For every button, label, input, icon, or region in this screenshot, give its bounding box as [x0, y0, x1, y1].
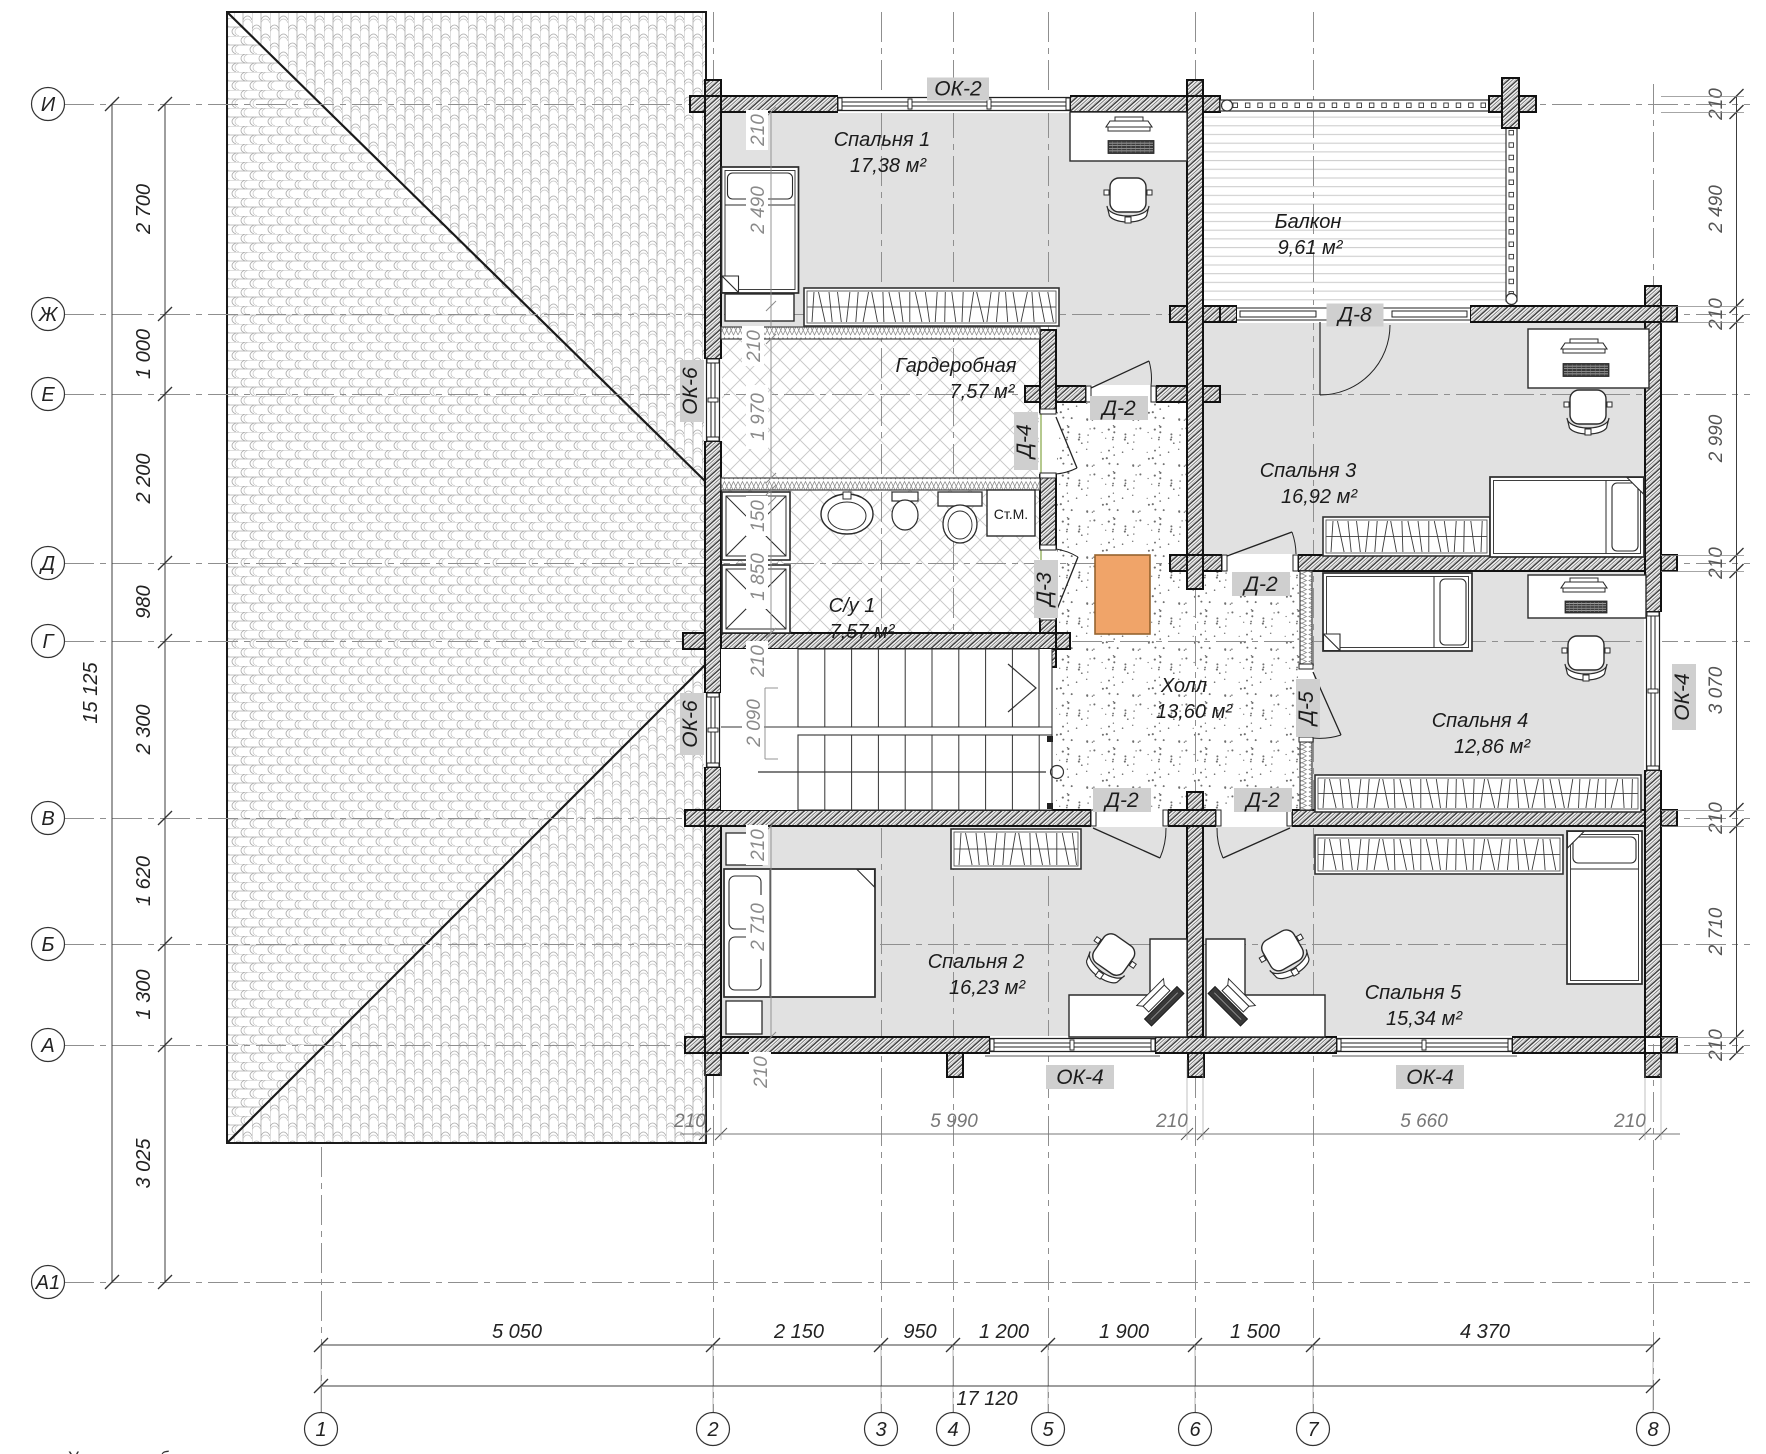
svg-text:1 200: 1 200	[979, 1321, 1029, 1343]
svg-text:ОК-2: ОК-2	[934, 78, 982, 101]
svg-text:3: 3	[875, 1419, 886, 1441]
svg-text:А1: А1	[35, 1272, 60, 1294]
svg-text:210: 210	[673, 1111, 706, 1132]
svg-text:5 990: 5 990	[930, 1111, 978, 1132]
svg-text:ОК-4: ОК-4	[1406, 1066, 1453, 1089]
svg-text:980: 980	[133, 585, 155, 618]
svg-text:Д: Д	[39, 553, 55, 575]
svg-text:2 490: 2 490	[1706, 185, 1727, 234]
svg-text:17 120: 17 120	[956, 1388, 1017, 1410]
svg-text:Д-2: Д-2	[1100, 397, 1136, 420]
svg-text:8: 8	[1647, 1419, 1658, 1441]
svg-text:17,38 м²: 17,38 м²	[850, 155, 927, 177]
svg-text:210: 210	[748, 645, 769, 678]
svg-text:ОК-4: ОК-4	[1671, 673, 1694, 720]
svg-text:Балкон: Балкон	[1275, 211, 1342, 233]
svg-text:150: 150	[748, 500, 769, 532]
svg-text:210: 210	[1706, 88, 1727, 121]
svg-text:2 490: 2 490	[748, 186, 769, 235]
svg-text:Ж: Ж	[38, 304, 59, 326]
svg-text:210: 210	[748, 114, 769, 147]
svg-text:Спальня 5: Спальня 5	[1365, 982, 1462, 1004]
svg-text:Условные обозначения: Условные обозначения	[68, 1448, 252, 1454]
svg-text:2 710: 2 710	[1706, 907, 1727, 956]
svg-text:ОК-6: ОК-6	[679, 367, 702, 415]
svg-text:13,60 м²: 13,60 м²	[1156, 701, 1233, 723]
svg-text:Д-2: Д-2	[1103, 789, 1139, 812]
svg-text:1 000: 1 000	[133, 329, 155, 379]
svg-text:1 500: 1 500	[1230, 1321, 1280, 1343]
svg-text:Д-3: Д-3	[1033, 572, 1056, 608]
svg-text:3 070: 3 070	[1706, 666, 1727, 714]
svg-text:2: 2	[706, 1419, 718, 1441]
svg-text:210: 210	[751, 1056, 772, 1089]
svg-text:9,61 м²: 9,61 м²	[1278, 237, 1344, 259]
svg-text:ОК-4: ОК-4	[1056, 1066, 1103, 1089]
svg-text:1 900: 1 900	[1099, 1321, 1149, 1343]
svg-text:5 050: 5 050	[492, 1321, 542, 1343]
svg-text:210: 210	[1706, 547, 1727, 580]
svg-text:12,86 м²: 12,86 м²	[1454, 736, 1531, 758]
svg-text:Спальня 2: Спальня 2	[928, 951, 1025, 973]
svg-text:7: 7	[1307, 1419, 1319, 1441]
svg-text:5: 5	[1042, 1419, 1054, 1441]
svg-text:4: 4	[947, 1419, 958, 1441]
svg-text:210: 210	[1155, 1111, 1188, 1132]
svg-text:Спальня 4: Спальня 4	[1432, 710, 1529, 732]
svg-text:Д-4: Д-4	[1013, 424, 1036, 459]
svg-text:16,23 м²: 16,23 м²	[949, 977, 1026, 999]
svg-text:210: 210	[744, 330, 765, 363]
svg-text:Спальня 1: Спальня 1	[834, 129, 931, 151]
svg-text:И: И	[41, 94, 56, 116]
svg-text:950: 950	[903, 1321, 936, 1343]
svg-text:4 370: 4 370	[1460, 1321, 1510, 1343]
svg-text:Ст.М.: Ст.М.	[994, 506, 1028, 522]
svg-text:Спальня 3: Спальня 3	[1260, 460, 1357, 482]
svg-text:15 125: 15 125	[80, 662, 102, 724]
svg-text:Гардеробная: Гардеробная	[896, 355, 1017, 377]
svg-text:6: 6	[1189, 1419, 1201, 1441]
svg-text:Д-5: Д-5	[1295, 691, 1318, 727]
svg-text:210: 210	[748, 829, 769, 862]
svg-text:Б: Б	[41, 934, 54, 956]
svg-text:210: 210	[1706, 1029, 1727, 1062]
svg-text:Д-8: Д-8	[1336, 304, 1372, 327]
svg-text:1 850: 1 850	[748, 553, 769, 601]
svg-text:Д-2: Д-2	[1242, 573, 1278, 596]
svg-text:1: 1	[315, 1419, 326, 1441]
svg-text:2 200: 2 200	[133, 453, 155, 504]
svg-text:1 620: 1 620	[133, 856, 155, 906]
svg-text:1 300: 1 300	[133, 969, 155, 1019]
svg-text:2 710: 2 710	[748, 903, 769, 952]
svg-text:16,92 м²: 16,92 м²	[1281, 486, 1358, 508]
svg-text:Е: Е	[41, 384, 55, 406]
svg-text:2 990: 2 990	[1706, 414, 1727, 463]
svg-text:3 025: 3 025	[133, 1138, 155, 1189]
svg-text:2 300: 2 300	[133, 704, 155, 755]
svg-text:210: 210	[1706, 298, 1727, 331]
svg-text:210: 210	[1613, 1111, 1646, 1132]
svg-text:2 090: 2 090	[744, 699, 765, 748]
svg-text:7,57 м²: 7,57 м²	[830, 621, 896, 643]
svg-text:5 660: 5 660	[1400, 1111, 1448, 1132]
svg-text:В: В	[41, 808, 54, 830]
svg-text:1 970: 1 970	[748, 393, 769, 441]
svg-text:210: 210	[1706, 802, 1727, 835]
svg-text:Д-2: Д-2	[1244, 789, 1280, 812]
svg-text:С/у 1: С/у 1	[829, 595, 876, 617]
svg-text:15,34 м²: 15,34 м²	[1386, 1008, 1463, 1030]
svg-text:2 700: 2 700	[133, 184, 155, 235]
svg-text:А: А	[40, 1035, 54, 1057]
svg-text:2 150: 2 150	[773, 1321, 824, 1343]
svg-text:7,57 м²: 7,57 м²	[950, 381, 1016, 403]
svg-text:Холл: Холл	[1160, 675, 1207, 697]
svg-text:ОК-6: ОК-6	[679, 700, 702, 748]
